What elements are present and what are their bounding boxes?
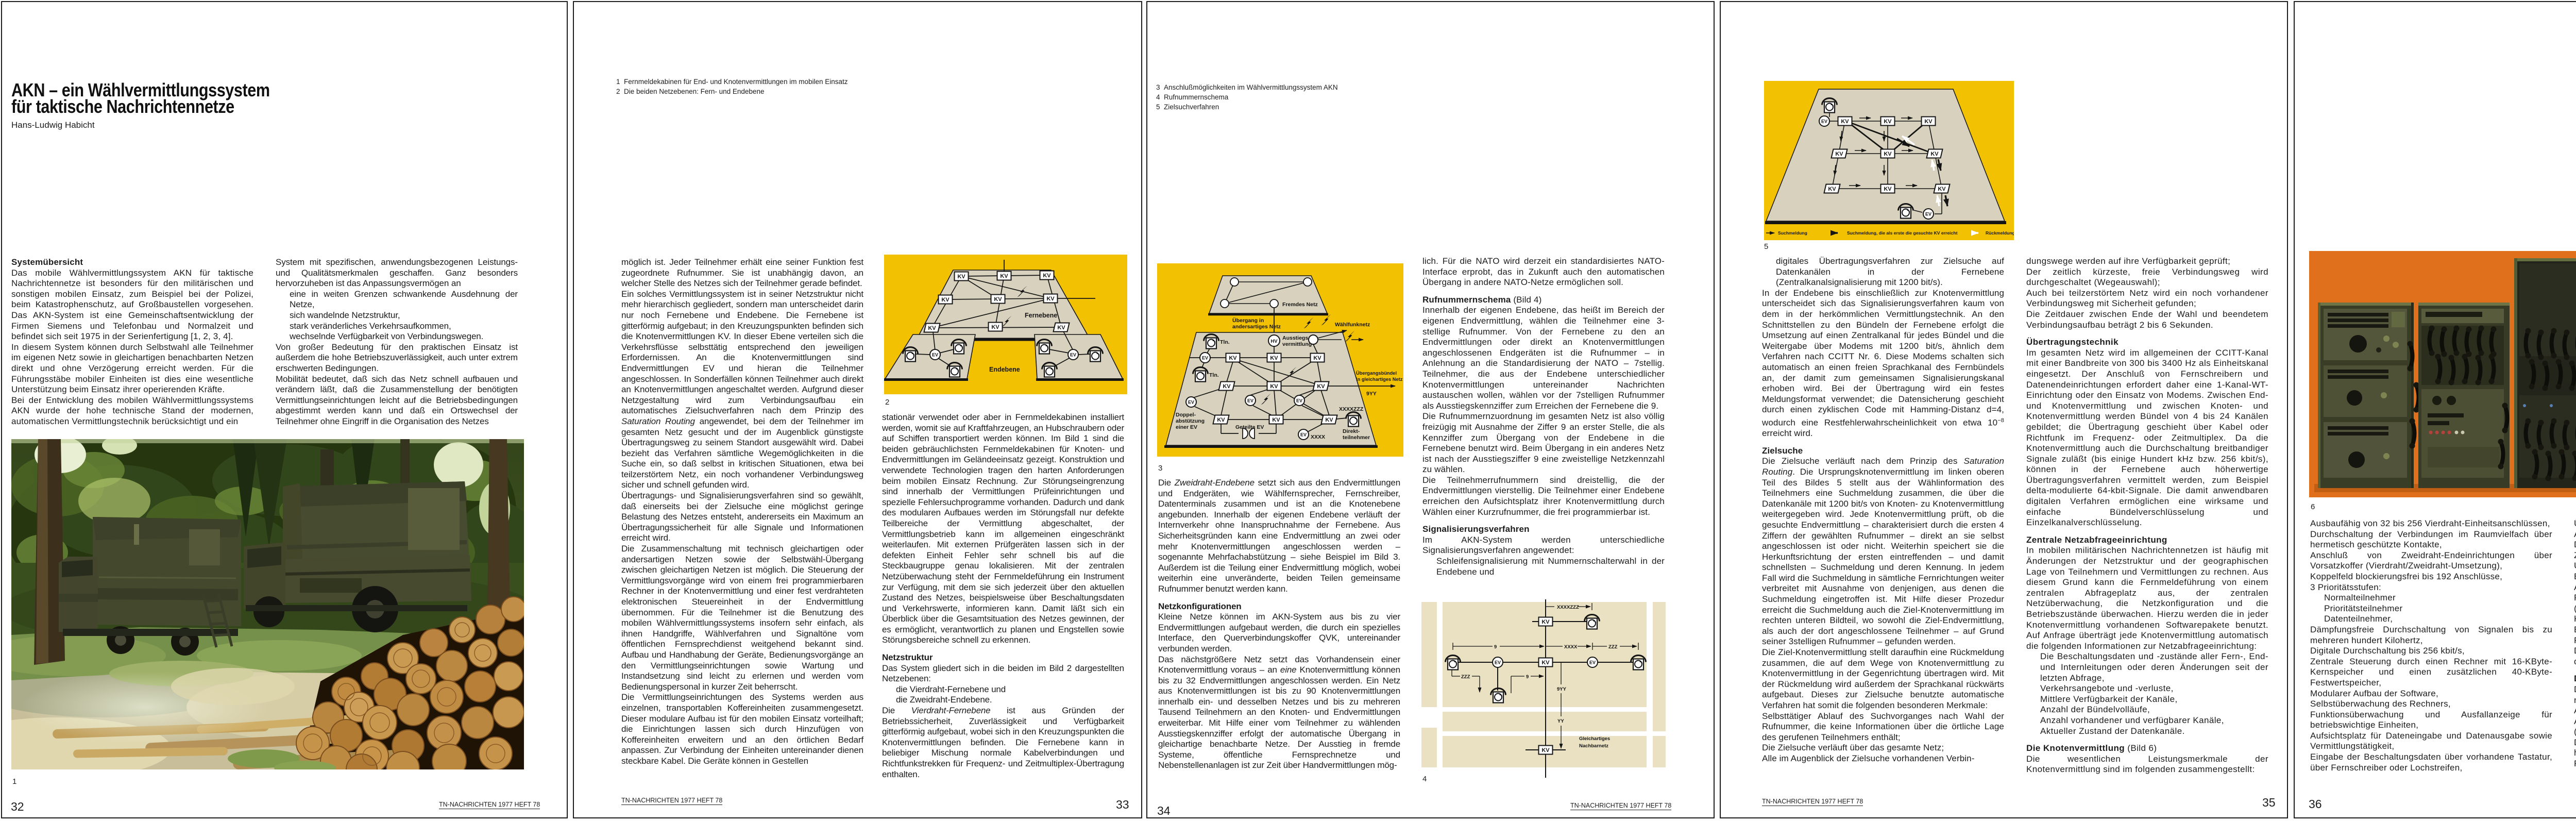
svg-text:XXXX: XXXX xyxy=(1311,434,1325,440)
svg-text:in gleichartiges Netz: in gleichartiges Netz xyxy=(1356,377,1403,382)
svg-text:YY: YY xyxy=(1557,718,1564,724)
svg-text:Wählfunknetz: Wählfunknetz xyxy=(1335,322,1370,328)
svg-text:Suchmeldung, die als erste die: Suchmeldung, die als erste die gesuchte … xyxy=(1847,230,1958,236)
svg-text:XXXX: XXXX xyxy=(1564,644,1578,650)
svg-text:Fremdes Netz: Fremdes Netz xyxy=(1282,301,1318,308)
svg-text:9YY: 9YY xyxy=(1366,391,1377,397)
svg-text:Ausstiegs-: Ausstiegs- xyxy=(1282,335,1310,341)
svg-text:Rückmeldung: Rückmeldung xyxy=(1986,230,2014,236)
svg-text:ZZZ: ZZZ xyxy=(1608,644,1618,650)
svg-text:andersartiges Netz: andersartiges Netz xyxy=(1232,324,1281,330)
svg-text:9: 9 xyxy=(1494,644,1497,650)
svg-text:Tln.: Tln. xyxy=(1220,339,1230,345)
svg-text:XXXXZZZ: XXXXZZZ xyxy=(1557,605,1579,610)
svg-text:9: 9 xyxy=(1526,674,1529,680)
svg-text:teilnehmer: teilnehmer xyxy=(1343,434,1370,441)
svg-text:Geteilte EV: Geteilte EV xyxy=(1235,424,1264,430)
svg-text:Direkt-: Direkt- xyxy=(1343,428,1360,434)
svg-text:Übergang in: Übergang in xyxy=(1232,317,1264,324)
svg-text:ZZZ: ZZZ xyxy=(1461,674,1470,680)
svg-text:einer EV: einer EV xyxy=(1176,424,1197,430)
svg-text:Tln.: Tln. xyxy=(1209,372,1219,378)
svg-text:HV: HV xyxy=(1270,339,1278,344)
svg-text:abstützung: abstützung xyxy=(1176,418,1205,424)
svg-text:XXXXZZZ: XXXXZZZ xyxy=(1339,406,1364,412)
svg-text:9YY: 9YY xyxy=(1557,686,1567,692)
svg-text:Übergangsbündel: Übergangsbündel xyxy=(1356,371,1397,376)
svg-text:Fernebene: Fernebene xyxy=(1025,312,1057,319)
svg-text:Doppel-: Doppel- xyxy=(1176,412,1196,418)
svg-text:Nachbarnetz: Nachbarnetz xyxy=(1579,743,1608,749)
svg-text:Endebene: Endebene xyxy=(989,366,1020,373)
svg-text:Suchmeldung: Suchmeldung xyxy=(1778,230,1807,236)
svg-text:Gleichartiges: Gleichartiges xyxy=(1579,736,1610,742)
svg-text:vermittlung: vermittlung xyxy=(1282,341,1312,347)
